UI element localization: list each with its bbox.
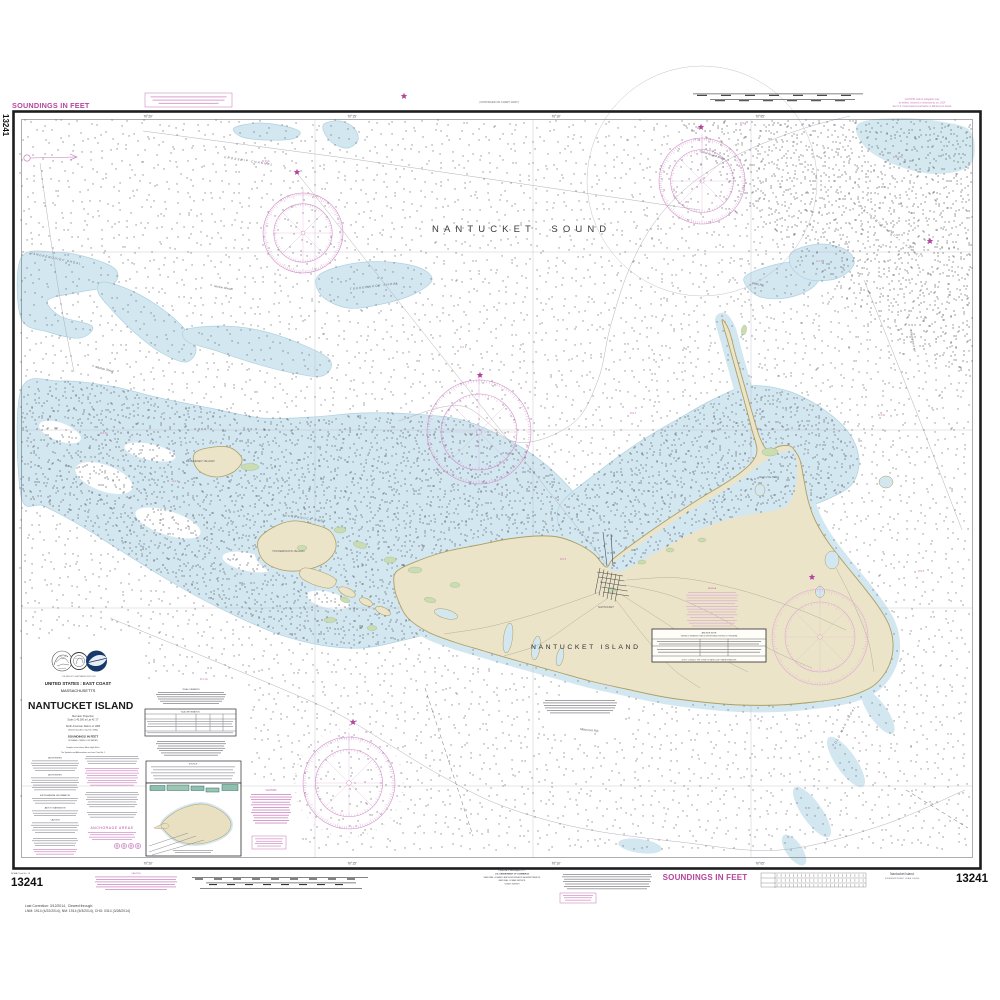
svg-text:AUTHORITIES: AUTHORITIES bbox=[48, 774, 62, 777]
svg-text:SOUNDINGS IN FEET: SOUNDINGS IN FEET bbox=[663, 873, 748, 882]
svg-text:NANTUCKET SOUND: NANTUCKET SOUND bbox=[432, 224, 611, 235]
svg-text:TIDAL CURRENTS: TIDAL CURRENTS bbox=[182, 688, 200, 691]
svg-text:VESSELS GREATER THAN 20 METERS: VESSELS GREATER THAN 20 METERS ANCHORING… bbox=[681, 635, 738, 638]
svg-text:North American Datum of 1983: North American Datum of 1983 bbox=[66, 725, 101, 728]
svg-text:NANTUCKET ISLAND: NANTUCKET ISLAND bbox=[28, 701, 133, 712]
svg-text:NATIONAL OCEAN SERVICE: NATIONAL OCEAN SERVICE bbox=[499, 879, 526, 882]
svg-text:Scale 1:40,000 at Lat 41°17′: Scale 1:40,000 at Lat 41°17′ bbox=[67, 719, 99, 722]
svg-text:70°15′: 70°15′ bbox=[348, 114, 357, 118]
svg-text:Fl G 2.5s: Fl G 2.5s bbox=[893, 156, 904, 159]
svg-text:Heights in feet above Mean Hig: Heights in feet above Mean High Water bbox=[67, 746, 100, 749]
svg-text:70°05′: 70°05′ bbox=[756, 862, 765, 866]
svg-text:ANCHOR NOTE: ANCHOR NOTE bbox=[702, 631, 717, 634]
svg-text:NOTE: CONSULT THE TOWN OF NANT: NOTE: CONSULT THE TOWN OF NANTUCKET HARB… bbox=[682, 658, 737, 661]
svg-text:LNM: 1914 (4/22/2014), NM: 191: LNM: 1914 (4/22/2014), NM: 1914 (5/3/201… bbox=[25, 909, 130, 913]
svg-text:THE NATION’S CHARTMAKER SINCE: THE NATION’S CHARTMAKER SINCE 1807 bbox=[62, 675, 96, 678]
svg-text:(World Geodetic System 1984): (World Geodetic System 1984) bbox=[68, 728, 98, 731]
svg-text:SOURCE: SOURCE bbox=[189, 764, 198, 766]
svg-text:See U.S. Coast Guard Local Not: See U.S. Coast Guard Local Notice to Mar… bbox=[893, 105, 953, 108]
svg-text:G C 3: G C 3 bbox=[816, 260, 823, 263]
svg-text:13241: 13241 bbox=[956, 873, 989, 885]
svg-text:Fl G 4s: Fl G 4s bbox=[200, 678, 209, 681]
svg-text:COAST SURVEY: COAST SURVEY bbox=[504, 883, 520, 886]
svg-text:AIDS TO NAVIGATION: AIDS TO NAVIGATION bbox=[45, 807, 66, 810]
svg-text:MUSKEGET ISLAND: MUSKEGET ISLAND bbox=[186, 459, 215, 463]
svg-text:TIDAL INFORMATION: TIDAL INFORMATION bbox=[181, 710, 201, 713]
svg-text:NOTE A: NOTE A bbox=[708, 587, 717, 590]
svg-text:Last Correction: 3/12/2014, C: Last Correction: 3/12/2014, Cleared thro… bbox=[25, 904, 93, 908]
svg-text:NANTUCKET: NANTUCKET bbox=[598, 605, 614, 609]
svg-text:UNITED STATES : EAST COAST: UNITED STATES : EAST COAST bbox=[45, 681, 112, 686]
svg-text:Head of the Harbor: Head of the Harbor bbox=[759, 476, 780, 479]
svg-text:U.S. DEPARTMENT OF COMMERCE: U.S. DEPARTMENT OF COMMERCE bbox=[495, 872, 530, 875]
svg-text:Produced at Washington, D.C.: Produced at Washington, D.C. bbox=[499, 869, 526, 872]
svg-text:SUPPLEMENTAL INFORMATION: SUPPLEMENTAL INFORMATION bbox=[40, 794, 71, 797]
svg-text:70°10′: 70°10′ bbox=[552, 862, 561, 866]
svg-text:70°20′: 70°20′ bbox=[144, 862, 153, 866]
svg-text:MASSACHUSETTS: MASSACHUSETTS bbox=[61, 688, 96, 693]
svg-text:CAUTION: CAUTION bbox=[51, 819, 61, 822]
svg-text:70°15′: 70°15′ bbox=[348, 862, 357, 866]
svg-text:R N 4: R N 4 bbox=[630, 412, 637, 415]
svg-text:Nantucket Island: Nantucket Island bbox=[890, 872, 914, 876]
svg-text:NATIONAL OCEANIC AND ATMOSPHER: NATIONAL OCEANIC AND ATMOSPHERIC ADMINIS… bbox=[484, 876, 541, 879]
svg-text:Fl 2.5s: Fl 2.5s bbox=[878, 414, 886, 417]
svg-text:70°05′: 70°05′ bbox=[756, 114, 765, 118]
svg-text:Fl R 6s: Fl R 6s bbox=[100, 432, 108, 435]
svg-text:13241: 13241 bbox=[1, 114, 10, 137]
svg-text:ANCHORAGE AREAS: ANCHORAGE AREAS bbox=[90, 826, 133, 830]
svg-text:FI R 4s: FI R 4s bbox=[262, 160, 271, 163]
svg-text:AUTHORITIES: AUTHORITIES bbox=[48, 757, 62, 760]
svg-text:R N 8: R N 8 bbox=[918, 570, 925, 573]
svg-text:CAUTION: CAUTION bbox=[132, 872, 142, 875]
svg-text:The Symbols and Abbreviations: The Symbols and Abbreviations are from C… bbox=[61, 751, 105, 754]
svg-text:be shifted, removed or destroy: be shifted, removed or destroyed by ice,… bbox=[899, 101, 946, 104]
svg-text:AT MEAN LOWER LOW WATER: AT MEAN LOWER LOW WATER bbox=[68, 739, 98, 742]
svg-text:TUCKERNUCK ISLAND: TUCKERNUCK ISLAND bbox=[272, 549, 305, 553]
svg-text:G C 9: G C 9 bbox=[460, 346, 467, 349]
svg-text:SOUNDINGS IN FEET: SOUNDINGS IN FEET bbox=[68, 735, 99, 739]
svg-text:SOUNDINGS IN FEET: SOUNDINGS IN FEET bbox=[12, 101, 90, 110]
svg-text:R N 6: R N 6 bbox=[560, 558, 567, 561]
svg-text:70°20′: 70°20′ bbox=[144, 114, 153, 118]
svg-text:70°10′: 70°10′ bbox=[552, 114, 561, 118]
svg-text:G C 5: G C 5 bbox=[172, 480, 179, 483]
svg-text:SOUNDINGS IN FEET SCALE 1:40,: SOUNDINGS IN FEET SCALE 1:40,000 bbox=[885, 877, 919, 880]
svg-text:13241: 13241 bbox=[11, 877, 44, 889]
svg-text:CAUTION: Aids to navigation ma: CAUTION: Aids to navigation may bbox=[905, 98, 940, 101]
svg-text:R N 2: R N 2 bbox=[740, 122, 747, 125]
svg-text:NOAA Chart No. 13: NOAA Chart No. 13 bbox=[11, 872, 31, 875]
svg-text:NANTUCKET ISLAND: NANTUCKET ISLAND bbox=[531, 644, 641, 651]
svg-text:(CONTINUED ON CHART 13237): (CONTINUED ON CHART 13237) bbox=[479, 100, 518, 104]
svg-text:CAUTION: CAUTION bbox=[266, 789, 277, 792]
